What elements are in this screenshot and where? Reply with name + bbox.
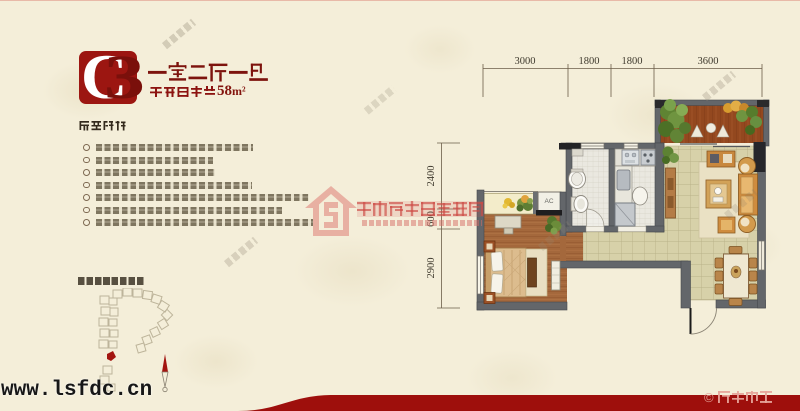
- svg-text:3000: 3000: [515, 56, 536, 67]
- svg-text:2900: 2900: [426, 258, 437, 279]
- svg-text:1800: 1800: [579, 56, 600, 67]
- svg-text:2400: 2400: [426, 166, 437, 187]
- svg-text:1800: 1800: [622, 56, 643, 67]
- svg-text:AC: AC: [544, 198, 553, 205]
- svg-text:3600: 3600: [698, 56, 719, 67]
